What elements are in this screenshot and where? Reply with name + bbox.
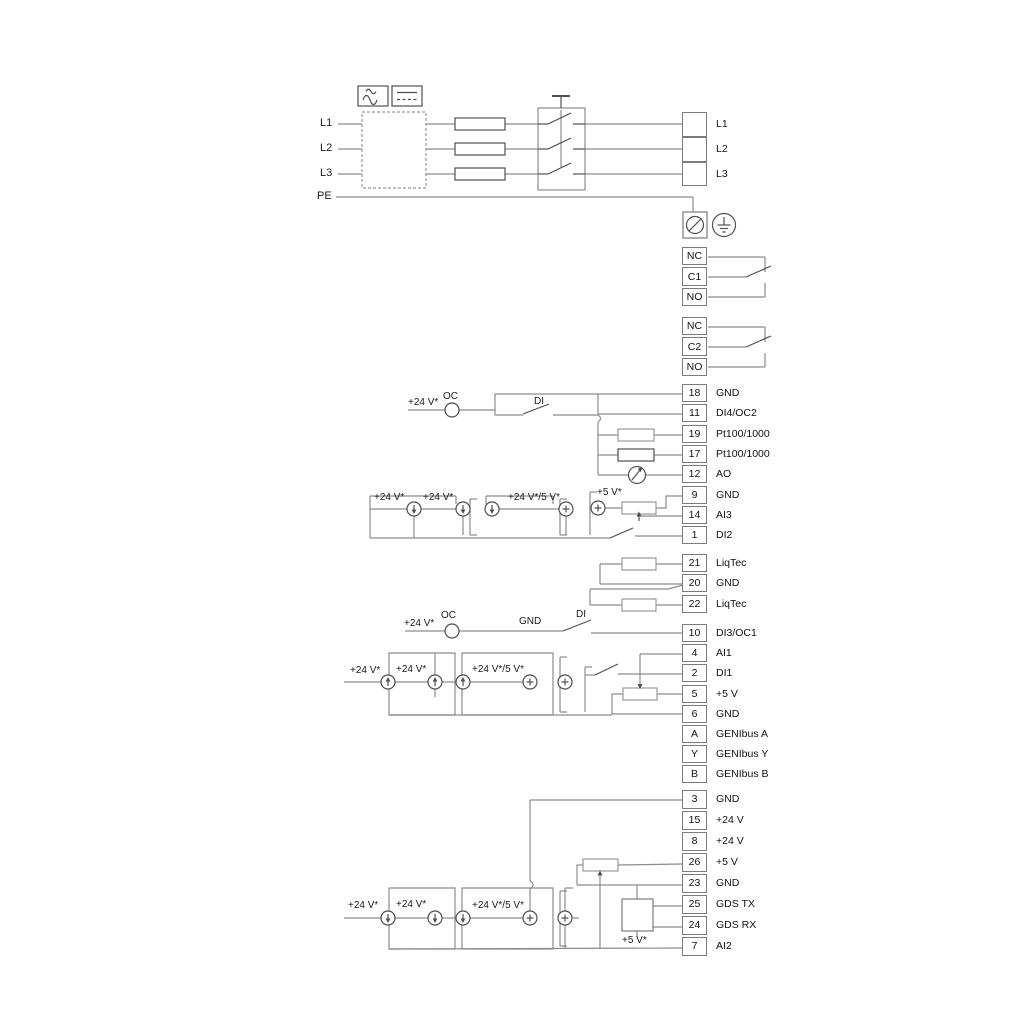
ai1-24v-b-label: +24 V* <box>396 664 426 675</box>
terminal-label: DI4/OC2 <box>716 407 757 419</box>
terminal-row: 11DI4/OC2 <box>682 404 852 422</box>
di3-oc-label: OC <box>441 610 456 621</box>
terminal-row: 20GND <box>682 574 852 592</box>
terminal-number: 24 <box>682 916 707 935</box>
terminal-label: GND <box>716 577 739 589</box>
terminal-row: AGENIbus A <box>682 725 852 743</box>
terminal-row: 21LiqTec <box>682 554 852 572</box>
terminal-row: 25GDS TX <box>682 895 852 914</box>
terminal-number: 1 <box>682 526 707 544</box>
liqtec-sensor-1 <box>622 558 656 570</box>
terminal-row: 17Pt100/1000 <box>682 445 852 463</box>
di3-di-label: DI <box>576 609 586 620</box>
terminal-number: 9 <box>682 486 707 504</box>
terminal-label: L1 <box>716 118 728 130</box>
diagram-wires <box>0 0 1024 1024</box>
terminal-label: DI1 <box>716 667 732 679</box>
terminal-number <box>682 162 707 187</box>
terminal-row: 8+24 V <box>682 832 852 851</box>
terminal-number: 25 <box>682 895 707 914</box>
terminal-number: NC <box>682 317 707 335</box>
terminal-row: 15+24 V <box>682 811 852 830</box>
terminal-row: 4AI1 <box>682 644 852 662</box>
terminal-label: GND <box>716 877 739 889</box>
di4-di-label: DI <box>534 396 544 407</box>
di4-24v-label: +24 V* <box>408 397 438 408</box>
terminal-label: AI1 <box>716 647 732 659</box>
terminal-row: C2 <box>682 337 852 355</box>
terminal-label: GND <box>716 708 739 720</box>
ai2-24v-b-label: +24 V* <box>396 899 426 910</box>
terminal-row: 18GND <box>682 384 852 402</box>
terminal-row: 9GND <box>682 486 852 504</box>
ai2-5v-label: +5 V* <box>622 935 647 946</box>
terminal-number: 26 <box>682 853 707 872</box>
input-label-l3: L3 <box>320 167 332 179</box>
terminal-number: 2 <box>682 664 707 682</box>
input-label-pe: PE <box>317 190 332 202</box>
terminal-label: AO <box>716 468 731 480</box>
di3-switch <box>563 620 591 631</box>
terminal-row: 14AI3 <box>682 506 852 524</box>
terminal-label: GND <box>716 793 739 805</box>
terminal-label: GENIbus B <box>716 768 769 780</box>
terminal-label: L3 <box>716 168 728 180</box>
gds-sensor-box <box>622 899 653 931</box>
terminal-number: B <box>682 765 707 783</box>
terminal-number: 4 <box>682 644 707 662</box>
earth-ground-icon <box>713 214 736 237</box>
terminal-label: +24 V <box>716 835 744 847</box>
terminal-number: NC <box>682 247 707 265</box>
terminal-label: Pt100/1000 <box>716 428 770 440</box>
terminal-number: 22 <box>682 595 707 613</box>
terminal-row: 1DI2 <box>682 526 852 544</box>
terminal-label: LiqTec <box>716 557 746 569</box>
ai3-24v-a-label: +24 V* <box>374 492 404 503</box>
terminal-row: 10DI3/OC1 <box>682 624 852 642</box>
terminal-number: 12 <box>682 465 707 483</box>
ai3-24v5v-label: +24 V*/5 V* <box>508 492 560 503</box>
terminal-label: GND <box>716 489 739 501</box>
ai3-potentiometer <box>622 502 656 521</box>
terminal-label: +5 V <box>716 856 738 868</box>
terminal-row: 26+5 V <box>682 853 852 872</box>
di3-24v-label: +24 V* <box>404 618 434 629</box>
terminal-row: L2 <box>682 137 852 162</box>
terminal-label: L2 <box>716 143 728 155</box>
terminal-number: 3 <box>682 790 707 809</box>
terminal-label: DI3/OC1 <box>716 627 757 639</box>
terminal-row: 6GND <box>682 705 852 723</box>
terminal-number: Y <box>682 745 707 763</box>
ai1-potentiometer <box>623 684 657 700</box>
terminal-label: +24 V <box>716 814 744 826</box>
ai1-24v-a-label: +24 V* <box>350 665 380 676</box>
terminal-label: GDS TX <box>716 898 755 910</box>
di4-oc-label: OC <box>443 391 458 402</box>
terminal-number: 21 <box>682 554 707 572</box>
terminal-row: C1 <box>682 267 852 285</box>
terminal-number: 14 <box>682 506 707 524</box>
terminal-number: C2 <box>682 337 707 355</box>
terminal-number: 15 <box>682 811 707 830</box>
fuse-l1 <box>455 118 505 130</box>
terminal-row: 5+5 V <box>682 685 852 703</box>
terminal-number: NO <box>682 358 707 376</box>
terminal-row: L3 <box>682 162 852 187</box>
ai2-24v5v-label: +24 V*/5 V* <box>472 900 524 911</box>
terminal-number: 23 <box>682 874 707 893</box>
pt100-resistor-1 <box>618 429 654 441</box>
terminal-row: BGENIbus B <box>682 765 852 783</box>
wiring-diagram-canvas: L1 L2 L3 PE +24 V* OC DI +24 V* +24 V* +… <box>0 0 1024 1024</box>
dc-lines-icon <box>392 86 422 106</box>
terminal-number: 17 <box>682 445 707 463</box>
terminal-label: GDS RX <box>716 919 756 931</box>
terminal-number: NO <box>682 288 707 306</box>
di3-gnd-label: GND <box>519 616 541 627</box>
terminal-row: NO <box>682 288 852 306</box>
terminal-row: 2DI1 <box>682 664 852 682</box>
fuse-l3 <box>455 168 505 180</box>
pt100-resistor-2 <box>618 449 654 461</box>
terminal-number <box>682 112 707 137</box>
terminal-number: 10 <box>682 624 707 642</box>
ai1-24v5v-label: +24 V*/5 V* <box>472 664 524 675</box>
terminal-row: 12AO <box>682 465 852 483</box>
terminal-number: 19 <box>682 425 707 443</box>
ac-wave-icon <box>358 86 388 106</box>
terminal-row: 19Pt100/1000 <box>682 425 852 443</box>
terminal-label: DI2 <box>716 529 732 541</box>
terminal-label: LiqTec <box>716 598 746 610</box>
terminal-number: 6 <box>682 705 707 723</box>
terminal-number: 5 <box>682 685 707 703</box>
terminal-row: 22LiqTec <box>682 595 852 613</box>
terminal-number: 8 <box>682 832 707 851</box>
di2-switch <box>610 528 633 538</box>
ai2-24v-a-label: +24 V* <box>348 900 378 911</box>
rectifier-box <box>362 112 426 188</box>
terminal-label: GENIbus Y <box>716 748 768 760</box>
terminal-number: C1 <box>682 267 707 285</box>
ai2-potentiometer <box>583 859 618 876</box>
terminal-label: Pt100/1000 <box>716 448 770 460</box>
terminal-row: L1 <box>682 112 852 137</box>
ai3-5v-label: +5 V* <box>597 487 622 498</box>
terminal-row: 23GND <box>682 874 852 893</box>
oc1-output-circle <box>445 624 459 638</box>
ai3-24v-b-label: +24 V* <box>423 492 453 503</box>
terminal-number: 18 <box>682 384 707 402</box>
ao-meter <box>629 467 646 484</box>
oc-output-circle <box>445 403 459 417</box>
terminal-row: 7AI2 <box>682 937 852 956</box>
terminal-label: GND <box>716 387 739 399</box>
terminal-label: +5 V <box>716 688 738 700</box>
terminal-label: GENIbus A <box>716 728 768 740</box>
terminal-number: 7 <box>682 937 707 956</box>
terminal-label: AI3 <box>716 509 732 521</box>
terminal-number <box>682 137 707 162</box>
terminal-row: YGENIbus Y <box>682 745 852 763</box>
terminal-row: 3GND <box>682 790 852 809</box>
input-label-l1: L1 <box>320 117 332 129</box>
input-label-l2: L2 <box>320 142 332 154</box>
terminal-row: 24GDS RX <box>682 916 852 935</box>
main-switch <box>538 96 585 190</box>
liqtec-sensor-2 <box>622 599 656 611</box>
pe-screw-terminal <box>683 212 707 238</box>
terminal-number: A <box>682 725 707 743</box>
terminal-row: NC <box>682 247 852 265</box>
terminal-row: NC <box>682 317 852 335</box>
terminal-row: NO <box>682 358 852 376</box>
terminal-number: 11 <box>682 404 707 422</box>
terminal-number: 20 <box>682 574 707 592</box>
di1-switch <box>595 664 618 675</box>
fuse-l2 <box>455 143 505 155</box>
terminal-label: AI2 <box>716 940 732 952</box>
